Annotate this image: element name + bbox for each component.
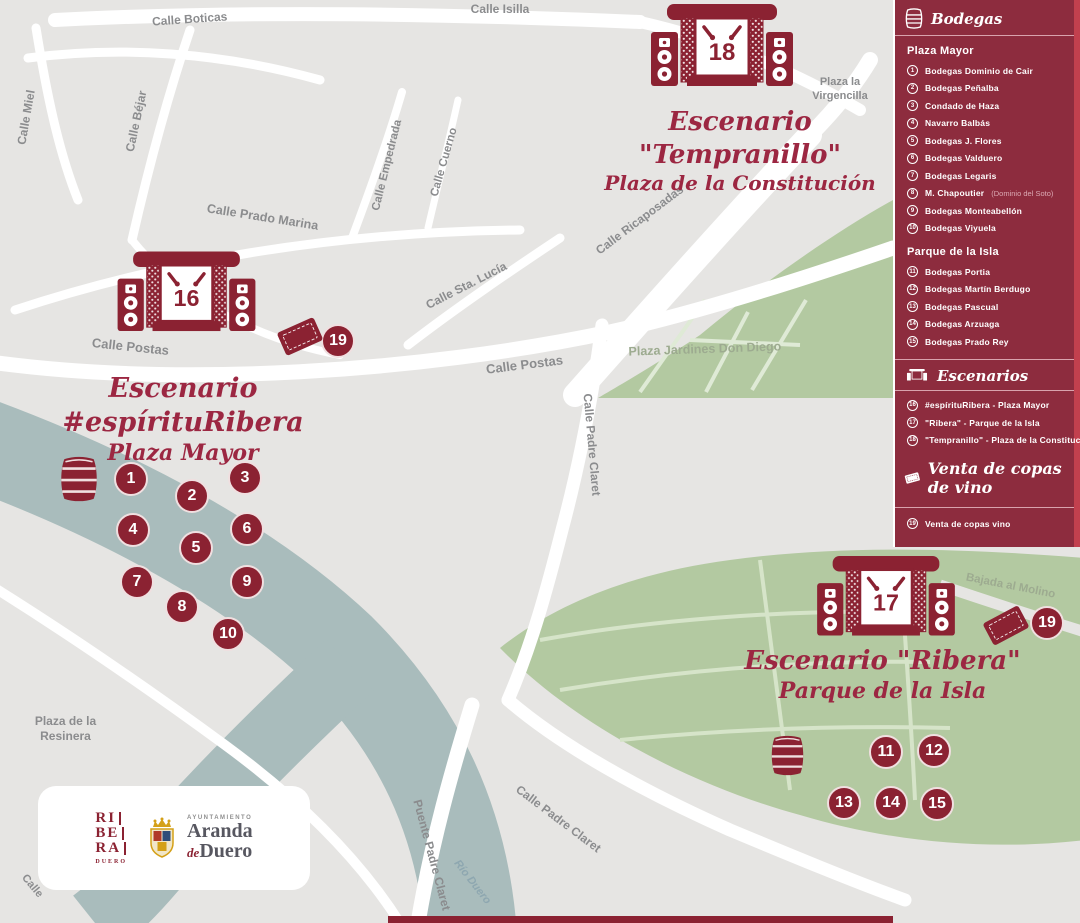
venta-header: Venta de copas de vino (895, 449, 1074, 505)
logo-letters: BE (95, 826, 119, 841)
section-plaza-mayor: Plaza Mayor (907, 45, 1064, 57)
stage-18-number: 18 (709, 39, 736, 66)
stage-title-espiritu-ribera: Escenario #espírituRibera Plaza Mayor (8, 372, 358, 467)
map-marker[interactable]: 3 (228, 461, 262, 495)
stage-16-number: 16 (174, 285, 200, 311)
list-item[interactable]: 7Bodegas Legaris (907, 167, 1068, 185)
legend-sidebar: Bodegas Plaza Mayor 1Bodegas Dominio de … (893, 0, 1080, 547)
list-item[interactable]: 4Navarro Balbás (907, 115, 1068, 133)
list-item[interactable]: 13Bodegas Pascual (907, 298, 1068, 316)
list-item[interactable]: 9Bodegas Monteabellón (907, 202, 1068, 220)
section-parque-isla: Parque de la Isla (907, 246, 1064, 258)
list-item[interactable]: 3Condado de Haza (907, 97, 1068, 115)
aranda-text: Aranda (187, 820, 253, 842)
ayuntamiento-logo: AYUNTAMIENTO Aranda deDuero (147, 815, 253, 861)
stage-subtitle-text: Plaza de la Constitución (575, 171, 905, 196)
list-item[interactable]: 15Bodegas Prado Rey (907, 333, 1068, 351)
list-item[interactable]: 10Bodegas Viyuela (907, 220, 1068, 238)
logo-sub: DUERO (95, 859, 127, 865)
stage-icon-16[interactable]: 16 (104, 250, 269, 350)
bodegas-title: Bodegas (931, 10, 1002, 28)
stage-title-text: Escenario #espírituRibera (8, 372, 358, 440)
list-item[interactable]: 8M. Chapoutier(Dominio del Soto) (907, 185, 1068, 203)
escenarios-title: Escenarios (937, 367, 1028, 385)
list-item[interactable]: 18"Tempranillo" - Plaza de la Constituci… (907, 432, 1068, 450)
event-map-page: Calle Isilla Calle Boticas Calle Miel Ca… (0, 0, 1080, 923)
map-marker[interactable]: 9 (230, 565, 264, 599)
ticket-icon (903, 469, 921, 486)
map-marker[interactable]: 7 (120, 565, 154, 599)
map-marker[interactable]: 1 (114, 462, 148, 496)
list-item[interactable]: 5Bodegas J. Flores (907, 132, 1068, 150)
stage-17-number: 17 (873, 589, 899, 615)
venta-title: Venta de copas de vino (928, 459, 1064, 497)
escenarios-header: Escenarios (895, 360, 1074, 391)
list-item[interactable]: 12Bodegas Martín Berdugo (907, 281, 1068, 299)
list-item[interactable]: 19Venta de copas vino (907, 515, 1068, 533)
map-marker[interactable]: 10 (211, 617, 245, 651)
barrel-icon (905, 8, 923, 29)
map-marker[interactable]: 11 (869, 735, 903, 769)
map-marker[interactable]: 4 (116, 513, 150, 547)
list-item[interactable]: 17"Ribera" - Parque de la Isla (907, 414, 1068, 432)
duero-text: Duero (199, 840, 252, 862)
stage-icon-18[interactable]: 18 (634, 4, 810, 104)
plaza-resinera-label: Plaza de la Resinera (18, 714, 113, 744)
map-marker[interactable]: 8 (165, 590, 199, 624)
stage-title-text: Escenario "Ribera" (740, 645, 1025, 678)
coat-of-arms-icon (147, 817, 177, 859)
bottom-border-strip (388, 916, 893, 923)
map-marker[interactable]: 15 (920, 787, 954, 821)
list-item[interactable]: 11Bodegas Portia (907, 263, 1068, 281)
map-marker-ticket-19[interactable]: 19 (321, 324, 355, 358)
wine-barrel-icon (57, 455, 101, 503)
de-text: de (187, 845, 199, 860)
list-item[interactable]: 2Bodegas Peñalba (907, 80, 1068, 98)
list-item[interactable]: 16#espírituRibera - Plaza Mayor (907, 397, 1068, 415)
logo-letters: RI (95, 811, 116, 826)
list-item[interactable]: 1Bodegas Dominio de Cair (907, 62, 1068, 80)
venta-list: 19Venta de copas vino (895, 515, 1074, 533)
stage-title-tempranillo: Escenario "Tempranillo" Plaza de la Cons… (575, 106, 905, 196)
map-marker-ticket-19[interactable]: 19 (1030, 606, 1064, 640)
ribera-del-duero-logo: RI BE RA DUERO (95, 811, 127, 865)
map-marker[interactable]: 13 (827, 786, 861, 820)
map-marker[interactable]: 2 (175, 479, 209, 513)
wine-barrel-icon (769, 732, 806, 779)
escenarios-list: 16#espírituRibera - Plaza Mayor 17"Riber… (895, 397, 1074, 450)
bodegas-parque-list: 11Bodegas Portia 12Bodegas Martín Berdug… (895, 263, 1074, 351)
map-marker[interactable]: 14 (874, 786, 908, 820)
logos-card: RI BE RA DUERO AYUNTAMIENTO Aranda deDue… (38, 786, 310, 890)
bodegas-header: Bodegas (895, 0, 1074, 36)
stage-title-ribera: Escenario "Ribera" Parque de la Isla (740, 645, 1025, 705)
stage-icon-17[interactable]: 17 (800, 556, 972, 653)
bodegas-plaza-mayor-list: 1Bodegas Dominio de Cair 2Bodegas Peñalb… (895, 62, 1074, 237)
separator (895, 507, 1074, 508)
list-item[interactable]: 6Bodegas Valduero (907, 150, 1068, 168)
map-marker[interactable]: 5 (179, 531, 213, 565)
list-item[interactable]: 14Bodegas Arzuaga (907, 316, 1068, 334)
street-label: Calle Isilla (471, 2, 530, 16)
stage-subtitle-text: Parque de la Isla (740, 678, 1025, 706)
stage-icon (905, 368, 929, 384)
map-marker[interactable]: 6 (230, 512, 264, 546)
logo-letters: RA (95, 841, 121, 856)
stage-title-text: Escenario "Tempranillo" (575, 106, 905, 171)
map-marker[interactable]: 12 (917, 734, 951, 768)
